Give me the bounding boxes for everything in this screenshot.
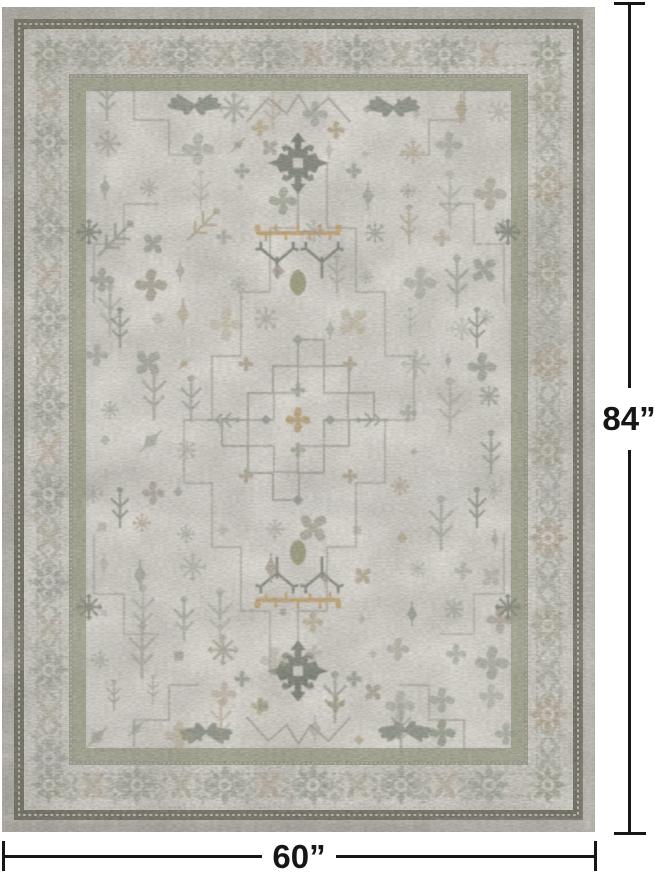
svg-text:60”: 60” [272,838,325,875]
svg-text:84”: 84” [602,400,655,437]
